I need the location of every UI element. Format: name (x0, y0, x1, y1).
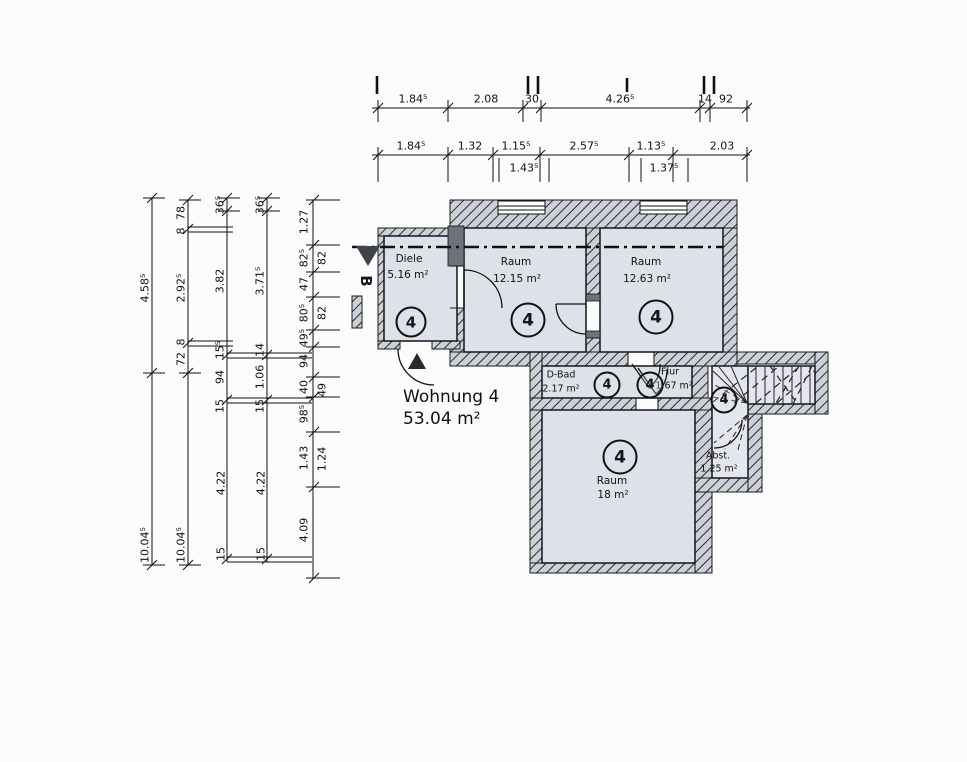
section-marker-icon (356, 246, 380, 266)
dim-label: 15 (255, 547, 268, 561)
dim-label: 1.84⁵ (399, 93, 428, 106)
apartment-title: Wohnung 4 (403, 387, 499, 407)
dim-label: 47 (298, 277, 311, 291)
floorplan-page: 1.84⁵ 2.08 30 4.26⁵ 14 92 1.84⁵ 1.32 1.1… (0, 0, 967, 762)
dim-label: 4.09 (298, 518, 311, 543)
dim-label: 30 (525, 93, 539, 106)
room-area: 5.16 m² (387, 269, 428, 281)
dim-label: 4.22 (255, 471, 268, 496)
dim-label: 4.22 (215, 471, 228, 496)
dim-label: 14 (698, 93, 712, 106)
dim-label: 14 (254, 343, 267, 357)
dim-label: 82 (316, 306, 329, 320)
dim-label: 3.71⁵ (254, 267, 267, 296)
dim-label: 78 (175, 206, 188, 220)
unit-badge: 4 (603, 440, 638, 475)
dim-label: 2.57⁵ (570, 140, 599, 153)
dim-label: 10.04⁵ (175, 527, 188, 563)
dim-label: 82⁵ (298, 249, 311, 267)
dim-label: 15⁵ (214, 341, 227, 359)
room-name: Diele (396, 253, 423, 265)
dim-label: 36⁵ (214, 196, 227, 214)
unit-badge: 4 (711, 387, 738, 414)
dim-label: 15 (214, 399, 227, 413)
unit-badge: 4 (594, 372, 621, 399)
room-area: 12.63 m² (623, 273, 671, 285)
dim-label: 49⁵ (298, 329, 311, 347)
dim-label: 72 (175, 352, 188, 366)
room-area: 1.25 m² (700, 464, 737, 475)
dim-label: 2.08 (474, 93, 499, 106)
dim-label: 1.13⁵ (637, 140, 666, 153)
dim-label: 4.26⁵ (606, 93, 635, 106)
unit-badge: 4 (511, 303, 546, 338)
room-name: Raum (597, 475, 627, 487)
room-name: Flur (661, 367, 679, 378)
unit-badge: 4 (637, 372, 664, 399)
section-marker-label: B (357, 275, 375, 286)
dim-label: 49 (316, 383, 329, 397)
window-icon (640, 201, 687, 214)
dim-label: 3.82 (214, 269, 227, 294)
window-icon (498, 201, 545, 214)
dim-label: 94 (214, 370, 227, 384)
dim-label: 1.32 (458, 140, 483, 153)
room-name: Raum (631, 256, 661, 268)
dim-label: 15 (254, 399, 267, 413)
dim-label: 94 (298, 354, 311, 368)
dim-label: 2.03 (710, 140, 735, 153)
room-name: D-Bad (547, 370, 576, 381)
dim-label: 80⁵ (298, 304, 311, 322)
room-area: 12.15 m² (493, 273, 541, 285)
dim-label: 82 (316, 251, 329, 265)
dim-label: 8 (175, 339, 188, 346)
dim-label: 10.04⁵ (139, 527, 152, 563)
room-name: Raum (501, 256, 531, 268)
dim-label: 36⁵ (254, 196, 267, 214)
unit-badge: 4 (396, 307, 427, 338)
room-area: 18 m² (597, 489, 628, 501)
dim-label: 40 (298, 380, 311, 394)
dim-label: 1.27 (298, 210, 311, 235)
dim-label: 1.37⁵ (650, 162, 679, 175)
unit-badge: 4 (639, 300, 674, 335)
dim-label: 1.24 (316, 447, 329, 472)
floorplan-drawing (0, 0, 967, 762)
dim-label: 15 (215, 547, 228, 561)
dim-label: 98⁵ (298, 405, 311, 423)
dim-label: 1.06 (254, 365, 267, 390)
dim-label: 92 (719, 93, 733, 106)
dim-label: 2.92⁵ (175, 274, 188, 303)
room-area: 2.17 m² (542, 384, 579, 395)
dim-label: 8 (175, 228, 188, 235)
dim-label: 1.84⁵ (397, 140, 426, 153)
entrance-arrow-icon (408, 353, 426, 369)
dim-label: 4.58⁵ (139, 274, 152, 303)
dim-label: 1.43⁵ (510, 162, 539, 175)
dim-label: 1.43 (298, 446, 311, 471)
apartment-area: 53.04 m² (403, 409, 480, 429)
dim-label: 1.15⁵ (502, 140, 531, 153)
room-name: Abst. (706, 451, 730, 462)
